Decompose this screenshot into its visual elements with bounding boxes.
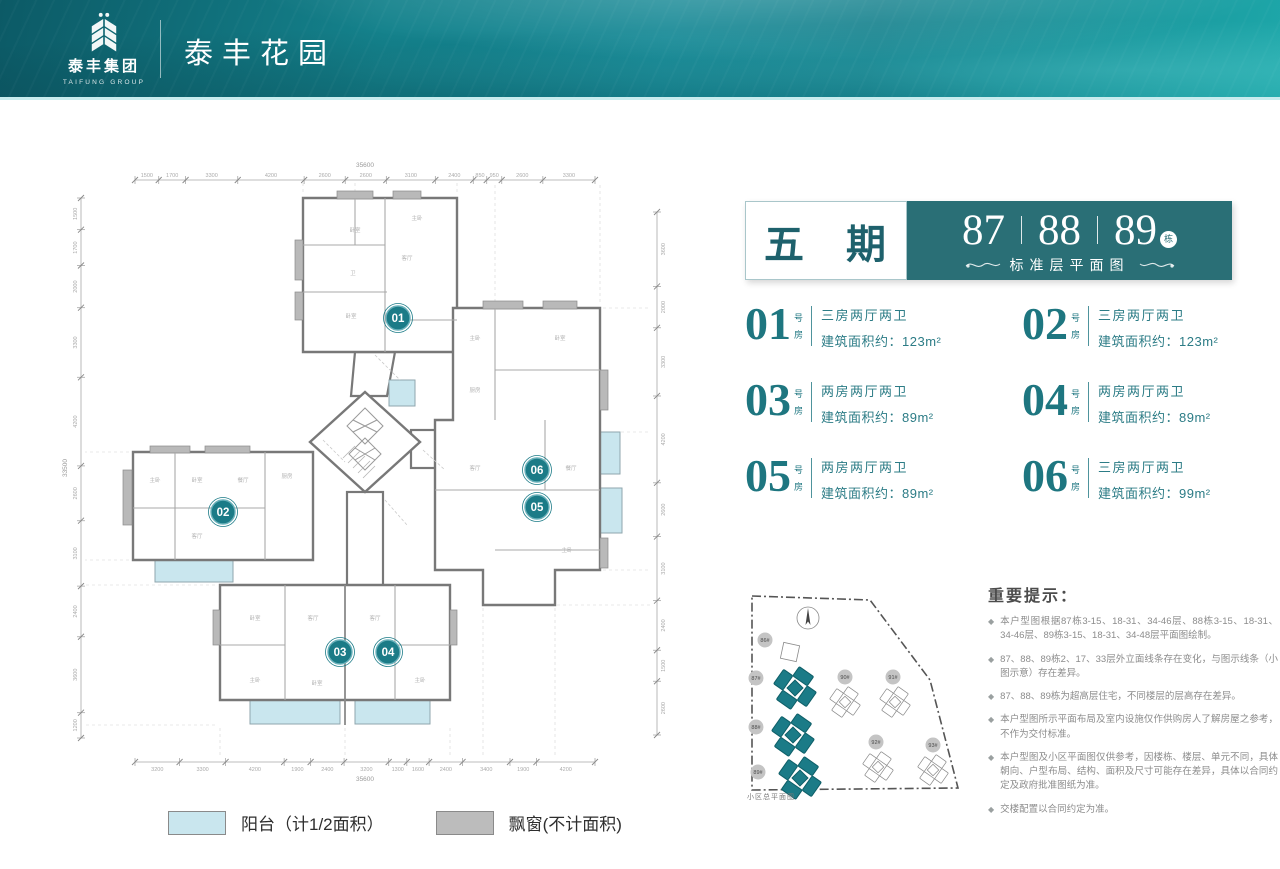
svg-text:4200: 4200 [265, 173, 277, 179]
unit-marker: 05 [523, 493, 552, 522]
room-label: 卫 [350, 270, 356, 277]
unit-layout: 三房两厅两卫 [821, 305, 941, 324]
svg-text:2400: 2400 [440, 767, 452, 773]
unit-divider [1088, 458, 1089, 498]
unit-layout: 两房两厅两卫 [1098, 381, 1211, 400]
unit-info: 两房两厅两卫建筑面积约：89m² [821, 381, 934, 426]
svg-text:3600: 3600 [73, 669, 79, 681]
flourish-right-icon [1138, 259, 1176, 271]
dimension-chain: 3200330042001900240032001300160024003400… [132, 758, 598, 783]
unit-divider [1088, 306, 1089, 346]
building-label: 89# [753, 770, 763, 776]
project-name: 泰丰花园 [184, 30, 336, 72]
svg-text:35600: 35600 [356, 162, 374, 169]
svg-text:3400: 3400 [480, 767, 492, 773]
room-label: 卧室 [554, 334, 566, 342]
unit-number: 06 [1022, 455, 1068, 497]
unit-item: 05号房两房两厅两卫建筑面积约：89m² [745, 455, 1022, 502]
unit-suffix-top: 号 [1071, 387, 1080, 400]
svg-text:2400: 2400 [661, 619, 667, 631]
svg-text:1200: 1200 [73, 719, 79, 731]
legend-swatch [168, 811, 226, 835]
legend-label: 阳台（计1/2面积） [241, 810, 384, 835]
svg-text:2400: 2400 [321, 767, 333, 773]
svg-text:3300: 3300 [661, 356, 667, 368]
building-label: 86# [760, 638, 770, 644]
building-footprint: 91# [880, 670, 911, 718]
svg-text:850: 850 [475, 173, 484, 179]
unit-marker: 06 [523, 456, 552, 485]
unit-marker: 04 [374, 638, 403, 667]
svg-text:4200: 4200 [560, 767, 572, 773]
room-label: 餐厅 [565, 464, 577, 472]
unit-suffix-top: 号 [794, 387, 803, 400]
unit-layout: 两房两厅两卫 [821, 457, 934, 476]
svg-text:03: 03 [334, 647, 347, 659]
svg-text:2400: 2400 [73, 605, 79, 617]
svg-text:02: 02 [217, 507, 230, 519]
note-text: 本户型图根据87栋3-15、18-31、34-46层、88栋3-15、18-31… [1000, 615, 1278, 644]
phase-label: 五 期 [750, 212, 902, 270]
subtitle-label: 标准层平面图 [1010, 255, 1130, 275]
legend-swatch [436, 811, 494, 835]
unit-number-suffix: 号房 [794, 387, 803, 417]
note-text: 本户型图所示平面布局及室内设施仅作供购房人了解房屋之参考，不作为交付标准。 [1000, 713, 1278, 742]
legend-label: 飘窗(不计面积) [509, 810, 622, 835]
unit-info: 两房两厅两卫建筑面积约：89m² [821, 457, 934, 502]
building-footprint: 92# [863, 735, 894, 783]
unit-suffix-bottom: 房 [794, 480, 803, 493]
legend-item: 阳台（计1/2面积） [168, 810, 384, 835]
unit-item: 03号房两房两厅两卫建筑面积约：89m² [745, 379, 1022, 426]
svg-text:2600: 2600 [661, 504, 667, 516]
unit-suffix-bottom: 房 [794, 328, 803, 341]
legend-item: 飘窗(不计面积) [436, 810, 622, 835]
building-separator [1097, 216, 1098, 244]
unit-divider [1088, 382, 1089, 422]
building-numbers: 878889栋 [962, 209, 1177, 252]
note-bullet-icon: ◆ [988, 617, 994, 644]
room-label: 餐厅 [237, 476, 249, 484]
svg-text:1900: 1900 [291, 767, 303, 773]
room-label: 卧室 [249, 614, 261, 622]
dimension-chain: 1500170020003300420026003100240036001200… [62, 195, 85, 741]
svg-text:3300: 3300 [73, 336, 79, 348]
note-text: 87、88、89栋为超高层住宅，不同楼层的层高存在差异。 [1000, 690, 1241, 704]
unit-divider [811, 306, 812, 346]
svg-text:35600: 35600 [356, 776, 374, 783]
building-label: 91# [888, 675, 898, 681]
notes-title: 重要提示： [988, 582, 1278, 606]
unit-info: 三房两厅两卫建筑面积约：123m² [821, 305, 941, 350]
unit-marker: 02 [209, 498, 238, 527]
unit-area: 建筑面积约：123m² [1098, 331, 1218, 350]
buildings-box: 878889栋 标准层平面图 [907, 201, 1232, 280]
unit-item: 06号房三房两厅两卫建筑面积约：99m² [1022, 455, 1237, 502]
building-label: 87# [751, 676, 761, 682]
unit-number-suffix: 号房 [1071, 463, 1080, 493]
note-item: ◆87、88、89栋2、17、33层外立面线条存在变化，与图示线条（小图示意）存… [988, 653, 1278, 682]
building-number: 88 [1038, 209, 1081, 252]
building-label: 90# [840, 675, 850, 681]
svg-text:3200: 3200 [360, 767, 372, 773]
note-text: 87、88、89栋2、17、33层外立面线条存在变化，与图示线条（小图示意）存在… [1000, 653, 1278, 682]
svg-text:2000: 2000 [73, 280, 79, 292]
svg-text:3100: 3100 [73, 547, 79, 559]
building-footprint: 88# [749, 714, 815, 757]
svg-text:1700: 1700 [73, 241, 79, 253]
site-map: 86#87#88#89#90#91#92#93# [743, 582, 975, 808]
title-block: 五 期 878889栋 标准层平面图 [745, 201, 1232, 280]
room-label: 主卧 [149, 476, 161, 484]
note-text: 交楼配置以合同约定为准。 [1000, 803, 1114, 817]
svg-text:3100: 3100 [661, 562, 667, 574]
unit-item: 01号房三房两厅两卫建筑面积约：123m² [745, 303, 1022, 350]
unit-number: 05 [745, 455, 791, 497]
unit-suffix-bottom: 房 [1071, 404, 1080, 417]
svg-text:1700: 1700 [166, 173, 178, 179]
note-bullet-icon: ◆ [988, 753, 994, 794]
room-label: 主卧 [414, 676, 426, 684]
svg-text:2000: 2000 [661, 301, 667, 313]
building-number: 87 [962, 209, 1005, 252]
notes-list: ◆本户型图根据87栋3-15、18-31、34-46层、88栋3-15、18-3… [988, 615, 1278, 817]
building-unit-badge: 栋 [1160, 231, 1177, 248]
unit-suffix-bottom: 房 [794, 404, 803, 417]
unit-number-suffix: 号房 [794, 311, 803, 341]
svg-text:1500: 1500 [73, 208, 79, 220]
note-item: ◆交楼配置以合同约定为准。 [988, 803, 1278, 817]
building-label: 92# [871, 740, 881, 746]
unit-divider [811, 382, 812, 422]
unit-layout: 三房两厅两卫 [1098, 305, 1218, 324]
note-bullet-icon: ◆ [988, 715, 994, 742]
svg-text:3300: 3300 [196, 767, 208, 773]
note-item: ◆本户型图所示平面布局及室内设施仅作供购房人了解房屋之参考，不作为交付标准。 [988, 713, 1278, 742]
company-logo: 泰丰集团 TAIFUNG GROUP [56, 10, 152, 86]
svg-text:2600: 2600 [661, 702, 667, 714]
building-footprint: 86# [758, 633, 800, 662]
room-label: 客厅 [369, 614, 381, 622]
unit-info: 两房两厅两卫建筑面积约：89m² [1098, 381, 1211, 426]
room-label: 主卧 [411, 214, 423, 222]
company-name-en: TAIFUNG GROUP [56, 79, 152, 86]
unit-list: 01号房三房两厅两卫建筑面积约：123m²02号房三房两厅两卫建筑面积约：123… [745, 303, 1237, 502]
svg-text:3300: 3300 [206, 173, 218, 179]
unit-number-suffix: 号房 [1071, 387, 1080, 417]
dimension-chain: 360020003300420026003100240015002600 [653, 209, 667, 738]
svg-text:1500: 1500 [661, 660, 667, 672]
svg-text:2600: 2600 [516, 173, 528, 179]
unit-number-suffix: 号房 [794, 463, 803, 493]
unit-suffix-bottom: 房 [1071, 480, 1080, 493]
phase-box: 五 期 [745, 201, 907, 280]
room-label: 主卧 [469, 334, 481, 342]
room-label: 客厅 [469, 464, 481, 472]
svg-text:1900: 1900 [517, 767, 529, 773]
unit-suffix-bottom: 房 [1071, 328, 1080, 341]
unit-number: 03 [745, 379, 791, 421]
wheat-leaf-logo-icon [81, 10, 127, 54]
company-name: 泰丰集团 [56, 55, 152, 76]
svg-text:2600: 2600 [73, 487, 79, 499]
header-banner: 泰丰集团 TAIFUNG GROUP 泰丰花园 [0, 0, 1280, 100]
note-bullet-icon: ◆ [988, 805, 994, 817]
unit-info: 三房两厅两卫建筑面积约：123m² [1098, 305, 1218, 350]
building-number: 89 [1114, 209, 1157, 252]
unit-number-suffix: 号房 [1071, 311, 1080, 341]
unit-suffix-top: 号 [1071, 311, 1080, 324]
unit-number: 02 [1022, 303, 1068, 345]
svg-text:3200: 3200 [151, 767, 163, 773]
svg-text:1600: 1600 [412, 767, 424, 773]
room-label: 卧室 [349, 226, 361, 234]
svg-text:3300: 3300 [563, 173, 575, 179]
svg-text:3600: 3600 [661, 243, 667, 255]
room-label: 厨房 [281, 472, 293, 480]
flourish-left-icon [964, 259, 1002, 271]
room-label: 厨房 [469, 386, 481, 394]
dimension-chain: 1500170033004200260026003100240085095026… [132, 162, 598, 184]
room-label: 主卧 [561, 546, 573, 554]
unit-item: 04号房两房两厅两卫建筑面积约：89m² [1022, 379, 1237, 426]
svg-text:4200: 4200 [249, 767, 261, 773]
svg-text:2600: 2600 [319, 173, 331, 179]
unit-divider [811, 458, 812, 498]
unit-layout: 两房两厅两卫 [821, 381, 934, 400]
svg-text:4200: 4200 [73, 415, 79, 427]
svg-text:4200: 4200 [661, 433, 667, 445]
note-bullet-icon: ◆ [988, 692, 994, 704]
room-label: 卧室 [311, 679, 323, 687]
svg-text:06: 06 [531, 465, 544, 477]
building-label: 88# [751, 725, 761, 731]
building-footprint: 90# [830, 670, 861, 718]
header-bottom-strip [0, 97, 1280, 100]
room-label: 客厅 [401, 254, 413, 262]
subtitle-row: 标准层平面图 [964, 255, 1176, 275]
svg-text:2600: 2600 [360, 173, 372, 179]
unit-area: 建筑面积约：99m² [1098, 483, 1211, 502]
svg-text:33500: 33500 [62, 459, 69, 477]
svg-text:3100: 3100 [405, 173, 417, 179]
unit-suffix-top: 号 [794, 463, 803, 476]
unit-number: 04 [1022, 379, 1068, 421]
svg-text:1300: 1300 [392, 767, 404, 773]
room-label: 客厅 [307, 614, 319, 622]
note-item: ◆87、88、89栋为超高层住宅，不同楼层的层高存在差异。 [988, 690, 1278, 704]
note-item: ◆本户型图根据87栋3-15、18-31、34-46层、88栋3-15、18-3… [988, 615, 1278, 644]
header-divider [160, 20, 161, 78]
room-label: 卧室 [191, 476, 203, 484]
legend: 阳台（计1/2面积）飘窗(不计面积) [168, 810, 622, 835]
unit-item: 02号房三房两厅两卫建筑面积约：123m² [1022, 303, 1237, 350]
unit-area: 建筑面积约：123m² [821, 331, 941, 350]
site-map-caption: 小区总平面图 [747, 792, 795, 802]
room-label: 客厅 [191, 532, 203, 540]
svg-text:05: 05 [531, 502, 544, 514]
unit-suffix-top: 号 [794, 311, 803, 324]
building-label: 93# [928, 743, 938, 749]
svg-text:950: 950 [490, 173, 499, 179]
unit-suffix-top: 号 [1071, 463, 1080, 476]
note-bullet-icon: ◆ [988, 655, 994, 682]
floor-plan: 1500170033004200260026003100240085095026… [55, 140, 705, 808]
note-item: ◆本户型图及小区平面图仅供参考，因楼栋、楼层、单元不同，具体朝向、户型布局、结构… [988, 751, 1278, 794]
unit-number: 01 [745, 303, 791, 345]
building-separator [1021, 216, 1022, 244]
room-label: 卧室 [345, 312, 357, 320]
svg-text:01: 01 [392, 313, 405, 325]
north-arrow-icon [797, 607, 819, 629]
unit-area: 建筑面积约：89m² [821, 483, 934, 502]
svg-text:1500: 1500 [141, 173, 153, 179]
unit-marker: 03 [326, 638, 355, 667]
unit-area: 建筑面积约：89m² [821, 407, 934, 426]
svg-text:04: 04 [382, 647, 395, 659]
building-footprint: 93# [918, 738, 949, 786]
svg-text:2400: 2400 [448, 173, 460, 179]
building-footprint: 87# [749, 667, 817, 710]
important-notes: 重要提示： ◆本户型图根据87栋3-15、18-31、34-46层、88栋3-1… [988, 582, 1278, 826]
note-text: 本户型图及小区平面图仅供参考，因楼栋、楼层、单元不同，具体朝向、户型布局、结构、… [1000, 751, 1278, 794]
unit-area: 建筑面积约：89m² [1098, 407, 1211, 426]
unit-info: 三房两厅两卫建筑面积约：99m² [1098, 457, 1211, 502]
room-label: 主卧 [249, 676, 261, 684]
unit-marker: 01 [384, 304, 413, 333]
unit-layout: 三房两厅两卫 [1098, 457, 1211, 476]
